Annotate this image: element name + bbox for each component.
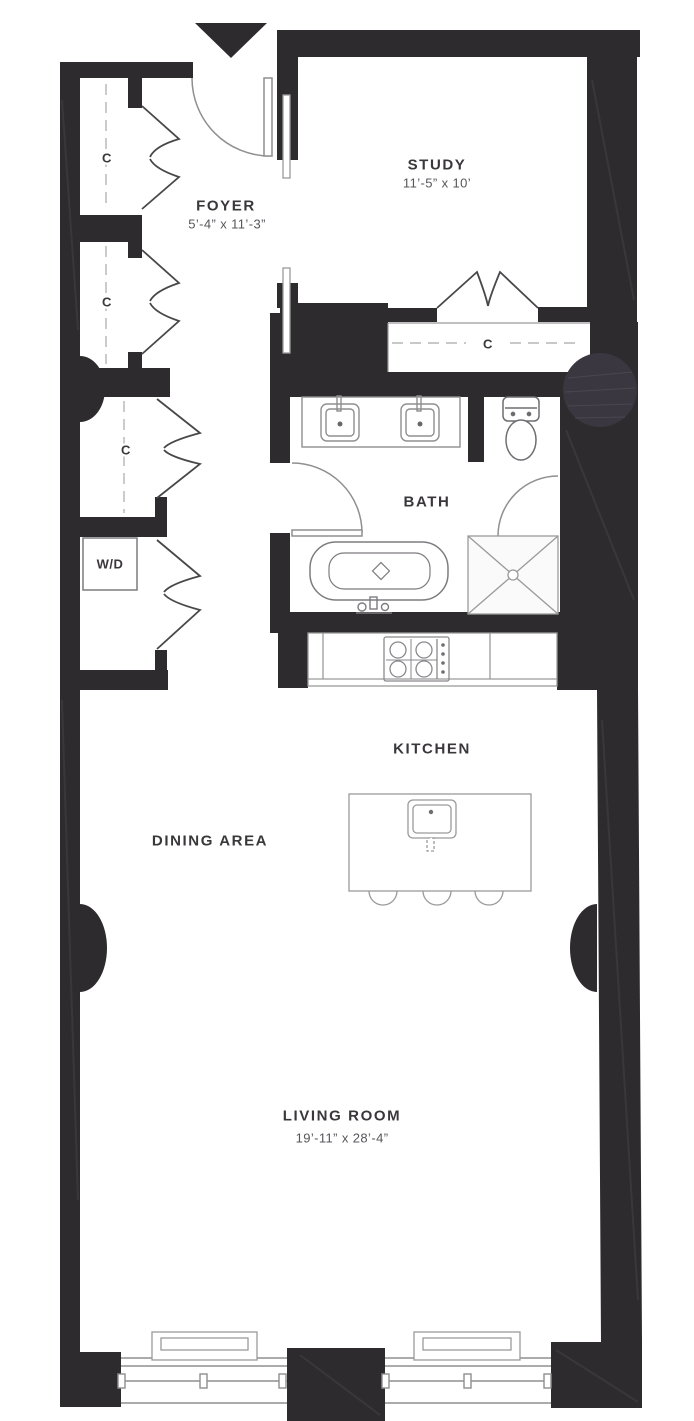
column-bump-left-upper bbox=[80, 356, 105, 422]
wall-top-study bbox=[277, 30, 640, 57]
walls bbox=[60, 23, 642, 1421]
closet-b-label: C bbox=[99, 296, 115, 309]
study-closet-bifold bbox=[437, 272, 538, 308]
dining-label: DINING AREA bbox=[152, 834, 268, 849]
radiator-right bbox=[414, 1332, 520, 1360]
closet-a-label: C bbox=[99, 152, 115, 165]
foyer-dims: 5’-4” x 11’-3” bbox=[188, 218, 266, 231]
toilet bbox=[503, 397, 539, 460]
floorplan-canvas: FOYER 5’-4” x 11’-3” STUDY 11’-5” x 10’ … bbox=[0, 0, 694, 1421]
vanity-sink-left bbox=[321, 396, 359, 441]
pocket-door bbox=[283, 95, 290, 353]
bath-label: BATH bbox=[404, 495, 451, 510]
vanity bbox=[302, 396, 460, 447]
study-label: STUDY bbox=[408, 158, 467, 173]
closet-bifold-wd bbox=[157, 540, 200, 649]
closet-c-label: C bbox=[118, 444, 134, 457]
bar-stools bbox=[369, 891, 503, 905]
entry-arrow-icon bbox=[195, 23, 267, 58]
radiator-left bbox=[152, 1332, 257, 1360]
study-dims: 11’-5” x 10’ bbox=[403, 177, 471, 190]
pier-bottom-left bbox=[60, 1352, 121, 1407]
living-dims: 19’-11” x 28’-4” bbox=[296, 1132, 389, 1145]
pier-bottom-center bbox=[287, 1348, 385, 1421]
closet-study-label: C bbox=[480, 338, 496, 351]
kitchen-label: KITCHEN bbox=[393, 742, 471, 757]
foyer-label: FOYER bbox=[196, 199, 256, 214]
column-bump-right-upper bbox=[563, 353, 637, 427]
bathtub bbox=[310, 542, 448, 613]
shower-drain bbox=[508, 570, 518, 580]
shower-door bbox=[498, 476, 558, 536]
column-bump-left-lower bbox=[80, 904, 107, 992]
wall-texture bbox=[62, 80, 638, 1415]
closet-bifold-b bbox=[142, 250, 179, 354]
column-bump-right-lower bbox=[570, 904, 597, 992]
living-label: LIVING ROOM bbox=[283, 1109, 401, 1124]
tub-drain bbox=[373, 563, 390, 580]
shower bbox=[468, 536, 558, 614]
closet-bifold-a bbox=[142, 106, 179, 209]
window-left bbox=[118, 1358, 287, 1403]
kitchen-island bbox=[349, 794, 531, 891]
wall-top-left bbox=[62, 62, 193, 78]
bath-door bbox=[292, 463, 362, 536]
closet-bifold-c bbox=[157, 399, 200, 498]
vanity-sink-right bbox=[401, 396, 439, 441]
washer-dryer-label: W/D bbox=[97, 558, 124, 571]
floorplan-drawing bbox=[0, 0, 694, 1421]
entry-door bbox=[192, 78, 272, 156]
window-right bbox=[382, 1358, 551, 1403]
